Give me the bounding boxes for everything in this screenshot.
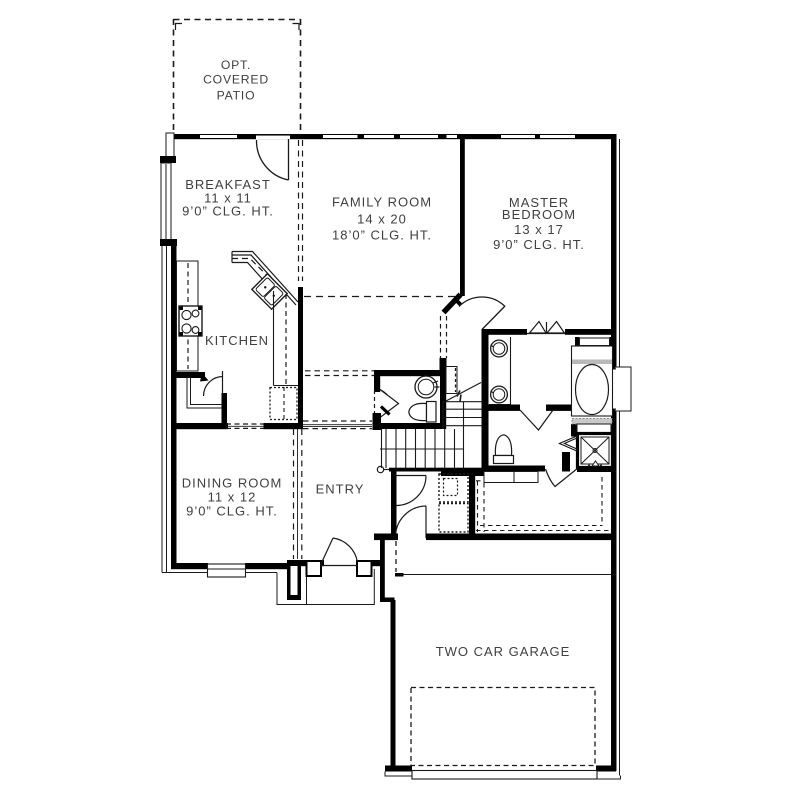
- svg-text:18’0” CLG. HT.: 18’0” CLG. HT.: [332, 228, 432, 243]
- svg-text:PATIO: PATIO: [217, 89, 256, 103]
- svg-text:TWO CAR GARAGE: TWO CAR GARAGE: [436, 644, 571, 659]
- svg-text:DINING ROOM: DINING ROOM: [182, 476, 283, 491]
- svg-text:KITCHEN: KITCHEN: [205, 333, 269, 348]
- svg-text:OPT.: OPT.: [221, 58, 251, 72]
- svg-text:11 x 12: 11 x 12: [208, 490, 257, 505]
- svg-text:ENTRY: ENTRY: [316, 482, 365, 497]
- svg-text:FAMILY ROOM: FAMILY ROOM: [332, 195, 432, 210]
- svg-text:9’0” CLG. HT.: 9’0” CLG. HT.: [493, 237, 585, 252]
- svg-text:14 x 20: 14 x 20: [357, 212, 407, 227]
- svg-text:9’0” CLG. HT.: 9’0” CLG. HT.: [182, 204, 274, 219]
- svg-text:13 x 17: 13 x 17: [514, 222, 564, 237]
- svg-text:COVERED: COVERED: [203, 73, 269, 87]
- svg-text:9’0” CLG. HT.: 9’0” CLG. HT.: [186, 504, 278, 519]
- svg-text:BEDROOM: BEDROOM: [502, 207, 576, 222]
